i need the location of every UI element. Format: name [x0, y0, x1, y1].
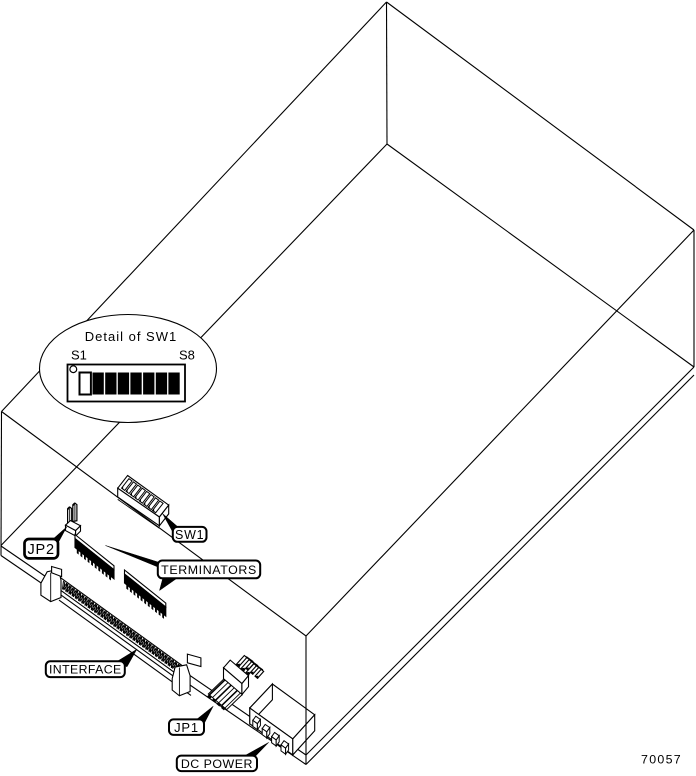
- svg-text:DC POWER: DC POWER: [181, 757, 253, 771]
- svg-text:INTERFACE: INTERFACE: [49, 663, 122, 677]
- svg-text:JP2: JP2: [28, 542, 55, 558]
- svg-text:Detail of SW1: Detail of SW1: [85, 329, 177, 344]
- svg-text:JP1: JP1: [174, 720, 199, 735]
- svg-text:TERMINATORS: TERMINATORS: [161, 563, 257, 577]
- svg-text:70057: 70057: [641, 753, 682, 767]
- svg-text:S8: S8: [179, 348, 195, 363]
- svg-text:SW1: SW1: [175, 528, 205, 542]
- svg-text:S1: S1: [71, 348, 87, 363]
